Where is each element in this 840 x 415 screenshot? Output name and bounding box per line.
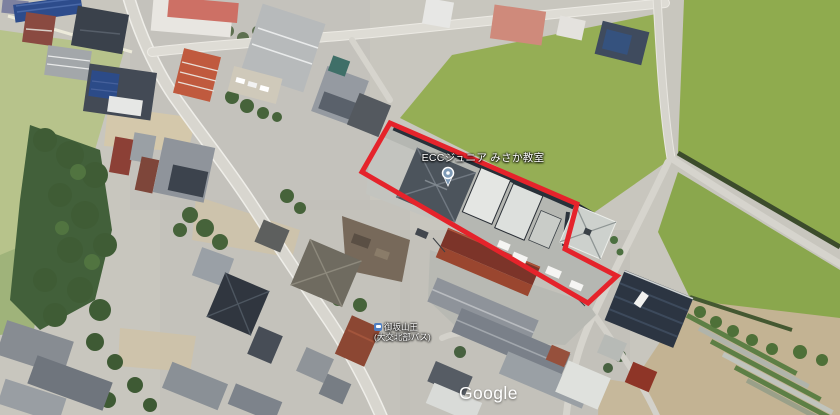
google-watermark[interactable]: Google	[459, 383, 518, 404]
bus-stop-name: 御坂山王	[384, 322, 418, 332]
poi-label[interactable]: ECCジュニア みさか教室	[422, 150, 545, 165]
map-canvas[interactable]: ECCジュニア みさか教室 御坂山王 (大交北部バス) Google	[0, 0, 840, 415]
bus-stop-label[interactable]: 御坂山王 (大交北部バス)	[374, 322, 431, 342]
bus-stop-icon	[374, 323, 382, 331]
bus-stop-operator: (大交北部バス)	[374, 332, 431, 342]
poi-label-text: ECCジュニア みさか教室	[422, 152, 545, 164]
satellite-imagery	[0, 0, 840, 415]
